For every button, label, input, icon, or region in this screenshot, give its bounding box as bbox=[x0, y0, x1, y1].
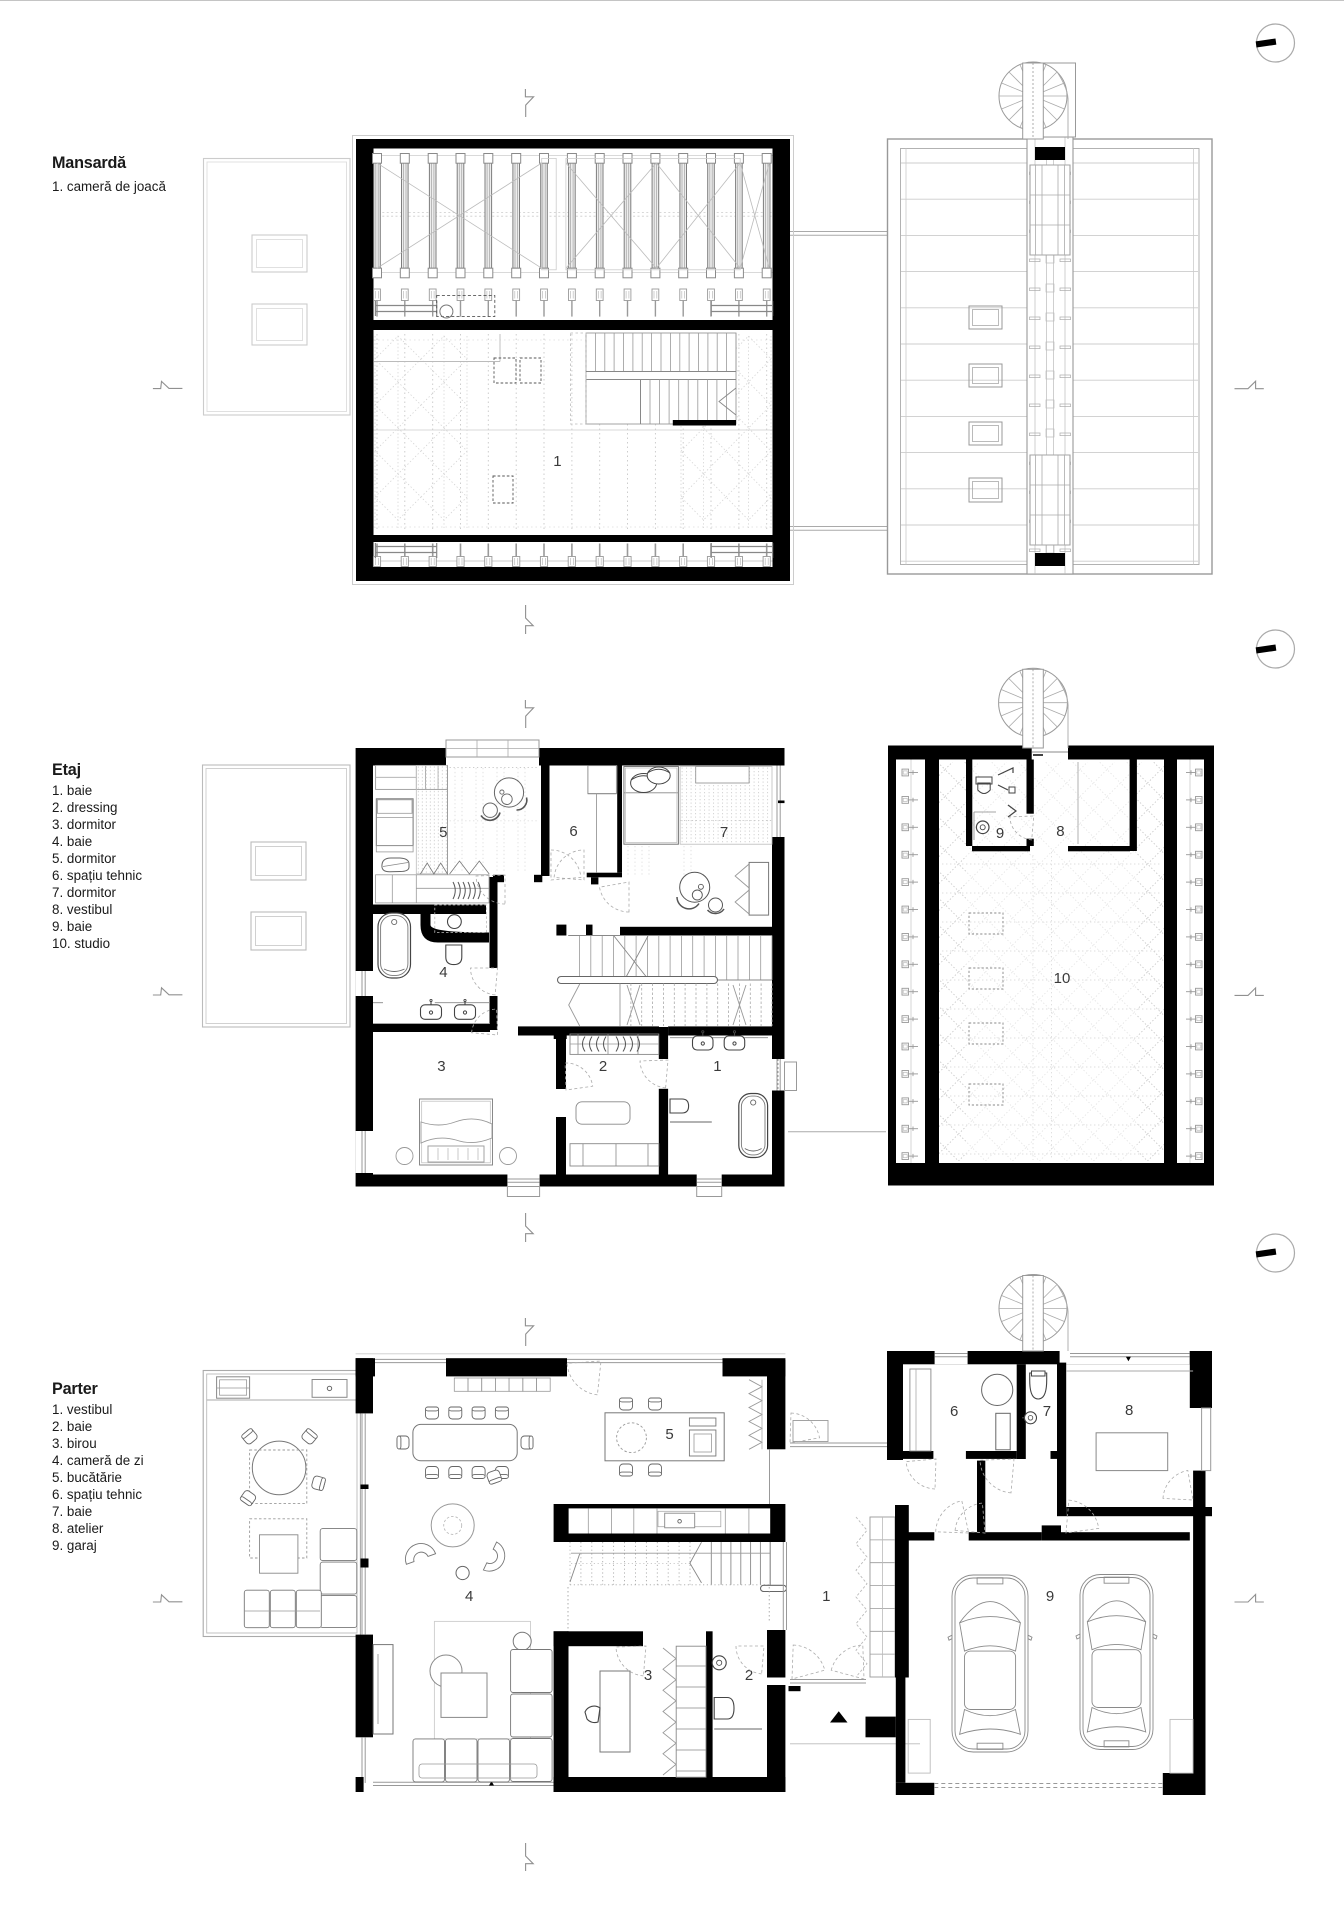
svg-text:8: 8 bbox=[1125, 1402, 1133, 1419]
svg-text:3: 3 bbox=[644, 1667, 652, 1684]
svg-text:7: 7 bbox=[720, 824, 728, 841]
svg-text:1. vestibul: 1. vestibul bbox=[52, 1402, 112, 1417]
svg-text:7: 7 bbox=[1043, 1403, 1051, 1420]
svg-text:6: 6 bbox=[569, 823, 577, 840]
svg-text:6: 6 bbox=[950, 1403, 958, 1420]
svg-text:Etaj: Etaj bbox=[52, 761, 81, 779]
svg-text:1: 1 bbox=[713, 1058, 721, 1075]
svg-text:5: 5 bbox=[439, 824, 447, 841]
svg-text:6. spațiu tehnic: 6. spațiu tehnic bbox=[52, 868, 142, 883]
svg-text:4. baie: 4. baie bbox=[52, 834, 92, 849]
svg-text:9. garaj: 9. garaj bbox=[52, 1538, 97, 1553]
svg-text:3. dormitor: 3. dormitor bbox=[52, 817, 117, 832]
svg-text:4: 4 bbox=[465, 1588, 473, 1605]
svg-text:7. dormitor: 7. dormitor bbox=[52, 885, 117, 900]
svg-text:4: 4 bbox=[439, 964, 447, 981]
svg-text:5: 5 bbox=[665, 1426, 673, 1443]
svg-text:8. vestibul: 8. vestibul bbox=[52, 902, 112, 917]
svg-text:10: 10 bbox=[1054, 970, 1071, 987]
svg-text:5. dormitor: 5. dormitor bbox=[52, 851, 117, 866]
svg-text:Mansardă: Mansardă bbox=[52, 154, 127, 172]
svg-text:7. baie: 7. baie bbox=[52, 1504, 92, 1519]
svg-text:5. bucătărie: 5. bucătărie bbox=[52, 1470, 122, 1485]
svg-text:2. dressing: 2. dressing bbox=[52, 800, 118, 815]
svg-text:Parter: Parter bbox=[52, 1380, 98, 1398]
svg-text:8: 8 bbox=[1056, 823, 1064, 840]
svg-text:10. studio: 10. studio bbox=[52, 936, 110, 951]
svg-text:1. baie: 1. baie bbox=[52, 783, 92, 798]
svg-text:3: 3 bbox=[437, 1058, 445, 1075]
svg-text:9: 9 bbox=[996, 825, 1004, 842]
svg-text:8. atelier: 8. atelier bbox=[52, 1521, 104, 1536]
svg-text:3. birou: 3. birou bbox=[52, 1436, 97, 1451]
svg-text:1: 1 bbox=[822, 1588, 830, 1605]
svg-text:2. baie: 2. baie bbox=[52, 1419, 92, 1434]
svg-text:1: 1 bbox=[553, 453, 561, 470]
svg-text:4. cameră de zi: 4. cameră de zi bbox=[52, 1453, 144, 1468]
svg-text:1. cameră de joacă: 1. cameră de joacă bbox=[52, 179, 166, 194]
svg-text:6. spațiu tehnic: 6. spațiu tehnic bbox=[52, 1487, 142, 1502]
svg-text:2: 2 bbox=[599, 1058, 607, 1075]
svg-text:9: 9 bbox=[1046, 1588, 1054, 1605]
svg-text:9. baie: 9. baie bbox=[52, 919, 92, 934]
